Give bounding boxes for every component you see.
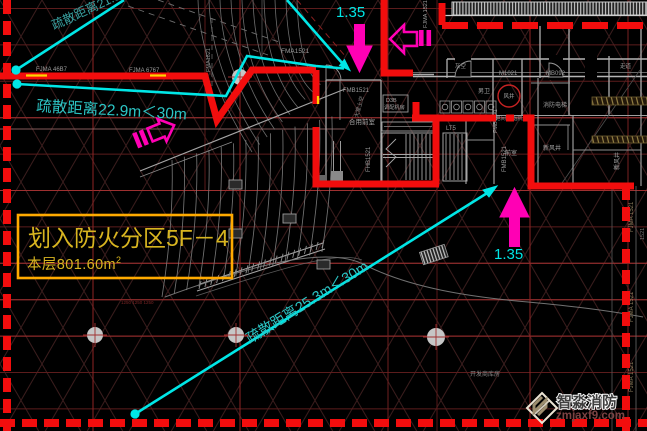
svg-text:消防电梯: 消防电梯: [543, 101, 567, 109]
svg-text:FJMA 46B7: FJMA 46B7: [36, 67, 68, 73]
svg-text:1.35: 1.35: [336, 4, 365, 21]
svg-text:合用前室: 合用前室: [349, 117, 376, 126]
svg-text:开发商库房: 开发商库房: [470, 370, 500, 378]
svg-text:1.35: 1.35: [494, 246, 523, 263]
svg-text:FHB1521: FHB1521: [366, 146, 372, 172]
svg-text:MB092: MB092: [546, 71, 566, 77]
svg-text:本层801.60m: 本层801.60m: [27, 256, 116, 273]
svg-text:LT5: LT5: [446, 126, 457, 132]
svg-text:调配机房: 调配机房: [384, 103, 405, 111]
svg-text:风井: 风井: [503, 92, 515, 100]
svg-text:FMB1521: FMB1521: [343, 88, 370, 94]
svg-text:灰空: 灰空: [455, 62, 467, 70]
svg-text:智淼消防: 智淼消防: [557, 393, 617, 411]
svg-text:2: 2: [116, 255, 121, 265]
svg-text:划入防火分区5F－4: 划入防火分区5F－4: [28, 225, 229, 251]
svg-text:D3B: D3B: [386, 98, 397, 104]
svg-text:M1021: M1021: [499, 71, 518, 77]
svg-text:FMB1521: FMB1521: [502, 145, 508, 172]
svg-text:男卫: 男卫: [478, 88, 490, 95]
svg-text:走道: 走道: [620, 62, 632, 70]
svg-text:FMA1521: FMA1521: [281, 48, 310, 55]
svg-text:1521: 1521: [640, 228, 646, 240]
svg-text:新风井: 新风井: [613, 152, 621, 170]
svg-text:新风井: 新风井: [543, 144, 561, 152]
svg-text:FJMA 1521: FJMA 1521: [423, 0, 429, 28]
svg-text:1250 1250 1250: 1250 1250 1250: [121, 300, 154, 305]
svg-text:zmjaxf9.com: zmjaxf9.com: [556, 410, 625, 422]
